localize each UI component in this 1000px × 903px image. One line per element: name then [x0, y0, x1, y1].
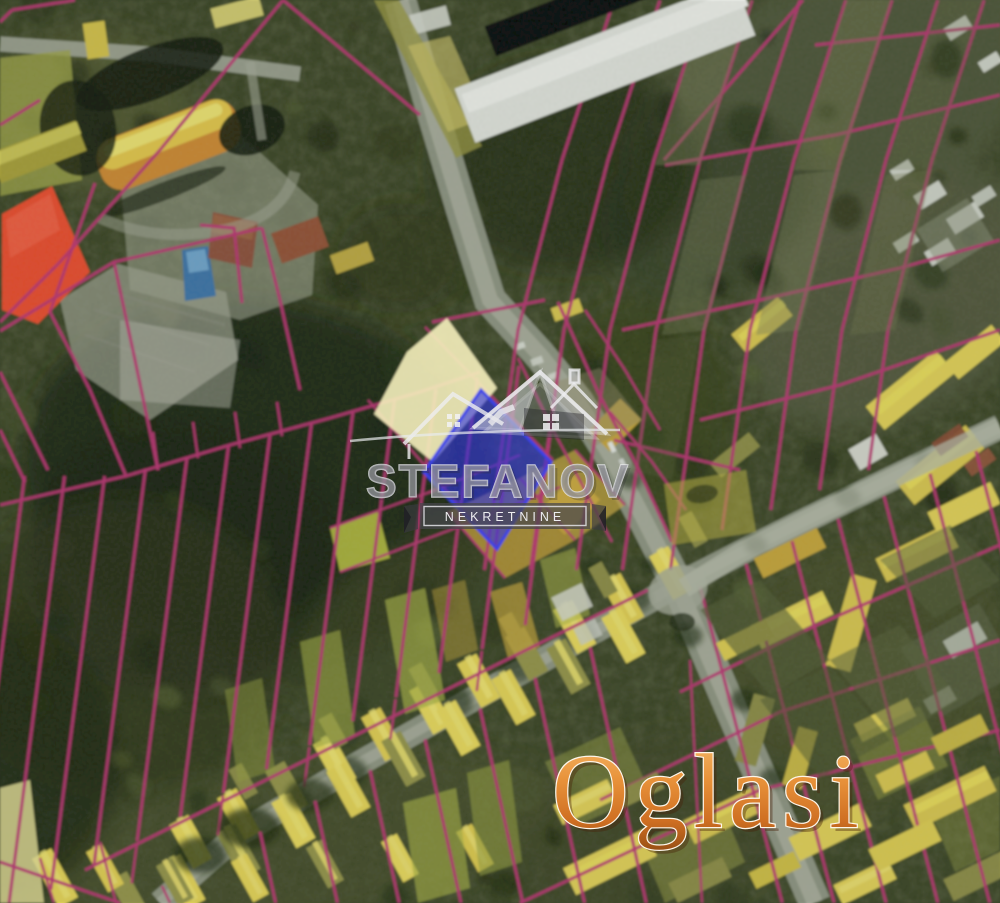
svg-text:STEFANOV: STEFANOV [366, 455, 630, 507]
svg-text:Oglasi: Oglasi [552, 733, 865, 850]
svg-text:NEKRETNINE: NEKRETNINE [445, 510, 566, 524]
